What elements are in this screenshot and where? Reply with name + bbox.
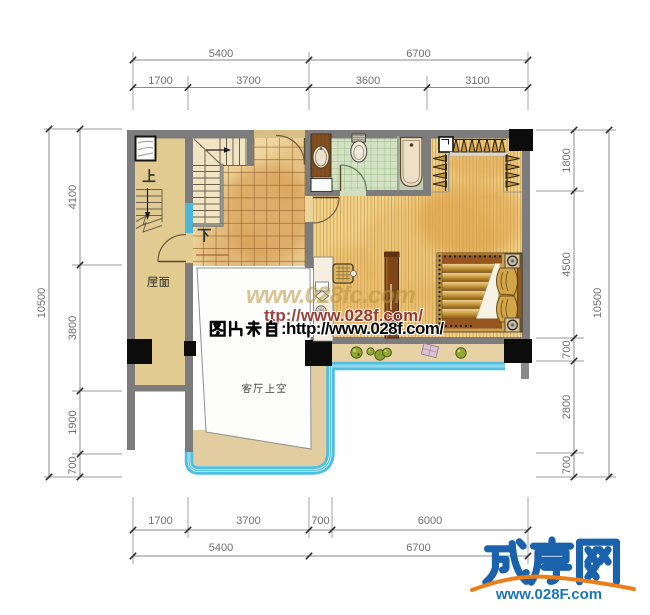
svg-text:1700: 1700: [148, 515, 172, 527]
svg-text:1800: 1800: [561, 148, 573, 172]
svg-text:10500: 10500: [36, 288, 48, 319]
svg-text:3100: 3100: [465, 75, 489, 87]
svg-text:5400: 5400: [209, 48, 233, 60]
svg-text:700: 700: [311, 515, 329, 527]
svg-text:6700: 6700: [406, 542, 430, 554]
svg-text:6000: 6000: [418, 515, 442, 527]
svg-text:1900: 1900: [67, 410, 79, 434]
svg-text:700: 700: [67, 456, 79, 474]
svg-text:10500: 10500: [592, 288, 604, 319]
svg-text:700: 700: [561, 456, 573, 474]
svg-text:3600: 3600: [356, 75, 380, 87]
svg-text:2800: 2800: [561, 395, 573, 419]
svg-text::http://www.028f.com/: :http://www.028f.com/: [281, 319, 444, 338]
svg-text:700: 700: [561, 340, 573, 358]
svg-text:5400: 5400: [209, 542, 233, 554]
svg-text:3700: 3700: [236, 515, 260, 527]
svg-text:6700: 6700: [406, 48, 430, 60]
svg-text:4500: 4500: [561, 252, 573, 276]
svg-text:3800: 3800: [67, 316, 79, 340]
svg-text:3700: 3700: [236, 75, 260, 87]
svg-text:4100: 4100: [67, 185, 79, 209]
svg-text:www.028fc.com: www.028fc.com: [246, 282, 415, 309]
svg-text:www.028F.com: www.028F.com: [495, 586, 602, 603]
svg-text:1700: 1700: [148, 75, 172, 87]
